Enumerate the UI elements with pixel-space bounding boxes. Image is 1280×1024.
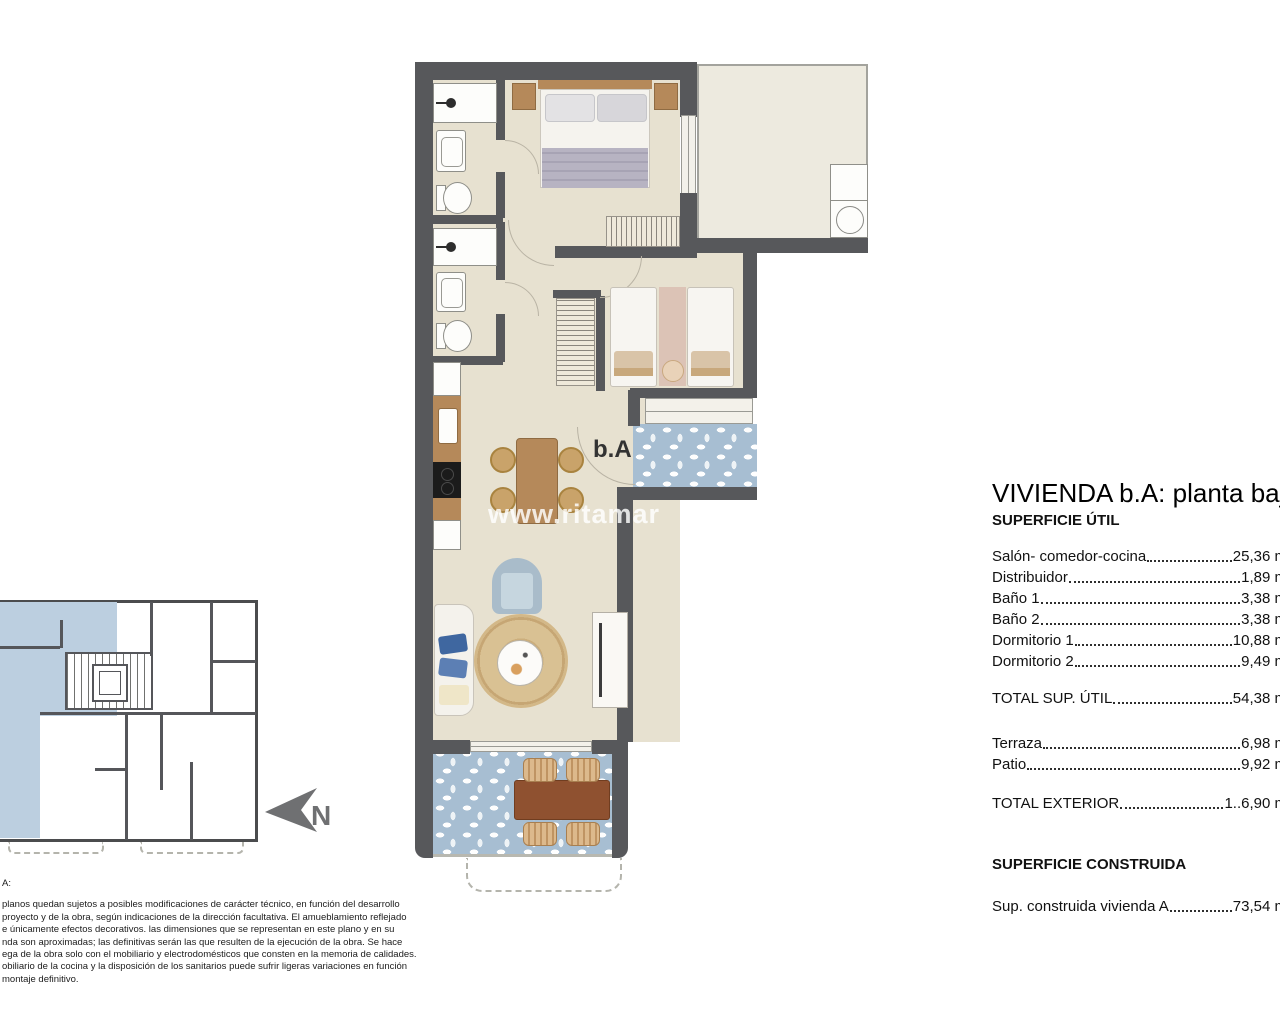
row-value: 9,92 m² bbox=[1241, 756, 1280, 773]
dining-chair-1 bbox=[490, 447, 516, 473]
kitchen-counter-top-end bbox=[433, 362, 461, 396]
wall-bath2-partition-b bbox=[496, 314, 505, 362]
wall-hall-bedroom2 bbox=[596, 296, 605, 391]
bedroom2-wardrobe bbox=[556, 298, 595, 386]
entry-porch-tiles bbox=[633, 424, 757, 488]
terrace-chair-3 bbox=[523, 822, 557, 846]
bath2-toilet-icon bbox=[436, 320, 470, 350]
bedroom2-porch-window bbox=[645, 398, 753, 424]
total-util-row: TOTAL SUP. ÚTIL54,38 m² bbox=[992, 690, 1280, 707]
key-wall-9 bbox=[190, 762, 193, 840]
wall-left bbox=[415, 62, 433, 858]
bath1-sink-icon bbox=[436, 130, 466, 172]
wall-bath1-partition-a bbox=[496, 80, 505, 140]
surface-constructed-header: SUPERFICIE CONSTRUIDA bbox=[992, 856, 1186, 873]
washer-drum-circle bbox=[836, 206, 864, 234]
terrace-table bbox=[514, 780, 610, 820]
row-value: 1..6,90 m² bbox=[1224, 795, 1280, 812]
bed-right-fold bbox=[691, 368, 730, 376]
bath2-shower-icon bbox=[433, 228, 497, 266]
wall-under-patio bbox=[680, 238, 868, 253]
row-value: 54,38 m² bbox=[1233, 690, 1280, 707]
dot-leader bbox=[1170, 910, 1232, 912]
wall-top bbox=[415, 62, 697, 80]
bedroom1-double-bed bbox=[540, 89, 650, 188]
dot-leader bbox=[1027, 768, 1240, 770]
bath2-shower-head bbox=[446, 242, 456, 252]
key-wall-4 bbox=[160, 714, 163, 790]
bath2-sink-icon bbox=[436, 272, 466, 312]
bedroom2-pouf bbox=[662, 360, 684, 382]
disclaimer-line: planos quedan sujetos a posibles modific… bbox=[2, 899, 394, 911]
wall-terrace-right bbox=[612, 740, 628, 858]
key-wall-7 bbox=[210, 660, 256, 663]
terrace-sliding-door bbox=[470, 741, 592, 752]
wall-bath2-partition-a bbox=[496, 222, 505, 280]
row-value: 73,54 m² bbox=[1233, 898, 1280, 915]
wall-bath1-partition-b bbox=[496, 172, 505, 218]
bedroom1-headboard bbox=[538, 80, 652, 89]
area-row-distribuidor: Distribuidor1,89 m² bbox=[992, 569, 1280, 586]
key-wall-10 bbox=[60, 620, 63, 648]
row-label: Patio bbox=[992, 756, 1026, 773]
bed-pillow-left bbox=[545, 94, 595, 122]
key-wall-1 bbox=[0, 646, 60, 649]
bedroom1-wardrobe bbox=[606, 216, 680, 247]
terrace-steps-outline bbox=[466, 858, 622, 892]
nightstand-left bbox=[512, 83, 536, 110]
dot-leader bbox=[1069, 581, 1240, 583]
row-label: Distribuidor bbox=[992, 569, 1068, 586]
bath1-shower-icon bbox=[433, 83, 497, 123]
unit-label: b.A bbox=[593, 436, 632, 464]
key-plan: N bbox=[0, 0, 400, 1024]
wall-wardrobe-top-stub bbox=[553, 290, 601, 298]
disclaimer-line: e únicamente efectos decorativos. las di… bbox=[2, 924, 394, 936]
bath2-toilet-bowl bbox=[443, 320, 472, 352]
surface-util-header: SUPERFICIE ÚTIL bbox=[992, 512, 1120, 529]
key-wall-8 bbox=[150, 602, 153, 656]
bed-left-fold bbox=[614, 368, 653, 376]
row-label: Sup. construida vivienda A bbox=[992, 898, 1169, 915]
key-plan-balcony-right bbox=[140, 842, 244, 854]
dot-leader bbox=[1041, 623, 1241, 625]
armchair-seat bbox=[501, 573, 533, 609]
bath1-shower-head bbox=[446, 98, 456, 108]
row-label: Baño 1 bbox=[992, 590, 1040, 607]
area-row-bano1: Baño 13,38 m² bbox=[992, 590, 1280, 607]
dot-leader bbox=[1075, 665, 1240, 667]
constructed-row: Sup. construida vivienda A73,54 m² bbox=[992, 898, 1280, 915]
row-label: TOTAL SUP. ÚTIL bbox=[992, 690, 1112, 707]
row-label: Salón- comedor-cocina bbox=[992, 548, 1146, 565]
bath1-shower-pipe bbox=[436, 102, 447, 104]
bedroom1-patio-window bbox=[681, 115, 696, 195]
key-wall-6 bbox=[210, 602, 213, 714]
tv-unit bbox=[592, 612, 628, 708]
key-wall-2 bbox=[40, 712, 256, 715]
row-label: Baño 2 bbox=[992, 611, 1040, 628]
wall-bedroom2-right bbox=[743, 253, 757, 397]
area-row-bano2: Baño 23,38 m² bbox=[992, 611, 1280, 628]
row-value: 1,89 m² bbox=[1241, 569, 1280, 586]
key-wall-3 bbox=[125, 714, 128, 840]
kitchen-counter-bottom-end bbox=[433, 520, 461, 550]
area-row-terraza: Terraza6,98 m² bbox=[992, 735, 1280, 752]
sofa-pillow-2 bbox=[438, 657, 468, 678]
surface-table: VIVIENDA b.A: planta baja SUPERFICIE ÚTI… bbox=[992, 0, 1280, 1024]
area-row-dormitorio2: Dormitorio 29,49 m² bbox=[992, 653, 1280, 670]
key-wall-5 bbox=[95, 768, 128, 771]
bedroom2-bed-left bbox=[610, 287, 657, 387]
bath1-basin bbox=[441, 137, 463, 167]
kitchen-counter-lower-section bbox=[433, 498, 461, 520]
disclaimer-line: obiliario de la cocina y la disposición … bbox=[2, 961, 394, 973]
terrace-open-edge bbox=[433, 854, 612, 857]
sofa bbox=[434, 604, 474, 716]
bath1-toilet-icon bbox=[436, 182, 470, 212]
disclaimer-line: A: bbox=[2, 878, 394, 890]
dot-leader bbox=[1043, 747, 1240, 749]
row-label: TOTAL EXTERIOR bbox=[992, 795, 1119, 812]
kitchen-cooktop bbox=[433, 462, 461, 498]
floor-plan-sheet: b.A www.ritamar N VIVIENDA b.A: planta bbox=[0, 0, 1280, 1024]
dot-leader bbox=[1120, 807, 1223, 809]
sofa-throw bbox=[439, 685, 469, 705]
terrace-chair-4 bbox=[566, 822, 600, 846]
area-row-patio: Patio9,92 m² bbox=[992, 756, 1280, 773]
wall-bedroom1-right-top bbox=[680, 62, 697, 117]
disclaimer-line: montaje definitivo. bbox=[2, 974, 394, 986]
row-value: 9,49 m² bbox=[1241, 653, 1280, 670]
washing-machine-drum-icon bbox=[830, 200, 868, 238]
dot-leader bbox=[1113, 702, 1231, 704]
bath2-shower-pipe bbox=[436, 246, 447, 248]
row-value: 3,38 m² bbox=[1241, 611, 1280, 628]
sofa-pillow-1 bbox=[438, 633, 468, 655]
kitchen-sink bbox=[438, 408, 458, 444]
elevator bbox=[92, 664, 128, 702]
key-plan-balcony-left bbox=[8, 842, 104, 854]
disclaimer-block: A: planos quedan sujetos a posibles modi… bbox=[2, 878, 394, 986]
area-row-dormitorio1: Dormitorio 110,88 m² bbox=[992, 632, 1280, 649]
row-label: Dormitorio 2 bbox=[992, 653, 1074, 670]
disclaimer-line: nda son aproximadas; las definitivas ser… bbox=[2, 937, 394, 949]
key-plan-highlight-lower bbox=[0, 716, 40, 838]
wall-bath1-bottom bbox=[415, 215, 503, 224]
tv-screen bbox=[599, 623, 602, 697]
row-value: 10,88 m² bbox=[1233, 632, 1280, 649]
nightstand-right bbox=[654, 83, 678, 110]
row-value: 3,38 m² bbox=[1241, 590, 1280, 607]
disclaimer-line: ega de la obra solo con el mobiliario y … bbox=[2, 949, 394, 961]
bed-pillow-right bbox=[597, 94, 647, 122]
wall-bedroom2-bottom bbox=[630, 388, 757, 398]
wall-living-bottom-left bbox=[415, 740, 470, 754]
row-value: 6,98 m² bbox=[1241, 735, 1280, 752]
north-label: N bbox=[311, 800, 331, 832]
area-row-salon: Salón- comedor-cocina25,36 m² bbox=[992, 548, 1280, 565]
dining-chair-3 bbox=[558, 447, 584, 473]
dot-leader bbox=[1041, 602, 1241, 604]
elevator-cab bbox=[99, 671, 121, 695]
bedroom2-bed-right bbox=[687, 287, 734, 387]
burner-2 bbox=[441, 482, 454, 495]
kitchen-counter-sink-section bbox=[433, 396, 461, 462]
bath2-basin bbox=[441, 278, 463, 308]
watermark: www.ritamar bbox=[488, 499, 660, 530]
coffee-table bbox=[497, 640, 543, 686]
bath1-toilet-bowl bbox=[443, 182, 472, 214]
row-value: 25,36 m² bbox=[1233, 548, 1280, 565]
armchair bbox=[492, 558, 542, 614]
dot-leader bbox=[1147, 560, 1232, 562]
total-exterior-row: TOTAL EXTERIOR1..6,90 m² bbox=[992, 795, 1280, 812]
washing-machine-icon bbox=[830, 164, 868, 201]
terrace-chair-1 bbox=[523, 758, 557, 782]
disclaimer-line: proyecto y de la obra, según indicacione… bbox=[2, 912, 394, 924]
wall-porch-left-stub bbox=[628, 390, 640, 426]
plan-title: VIVIENDA b.A: planta baja bbox=[992, 478, 1280, 509]
row-label: Dormitorio 1 bbox=[992, 632, 1074, 649]
row-label: Terraza bbox=[992, 735, 1042, 752]
burner-1 bbox=[441, 468, 454, 481]
dot-leader bbox=[1075, 644, 1232, 646]
terrace-chair-2 bbox=[566, 758, 600, 782]
bed-blanket bbox=[542, 148, 648, 188]
